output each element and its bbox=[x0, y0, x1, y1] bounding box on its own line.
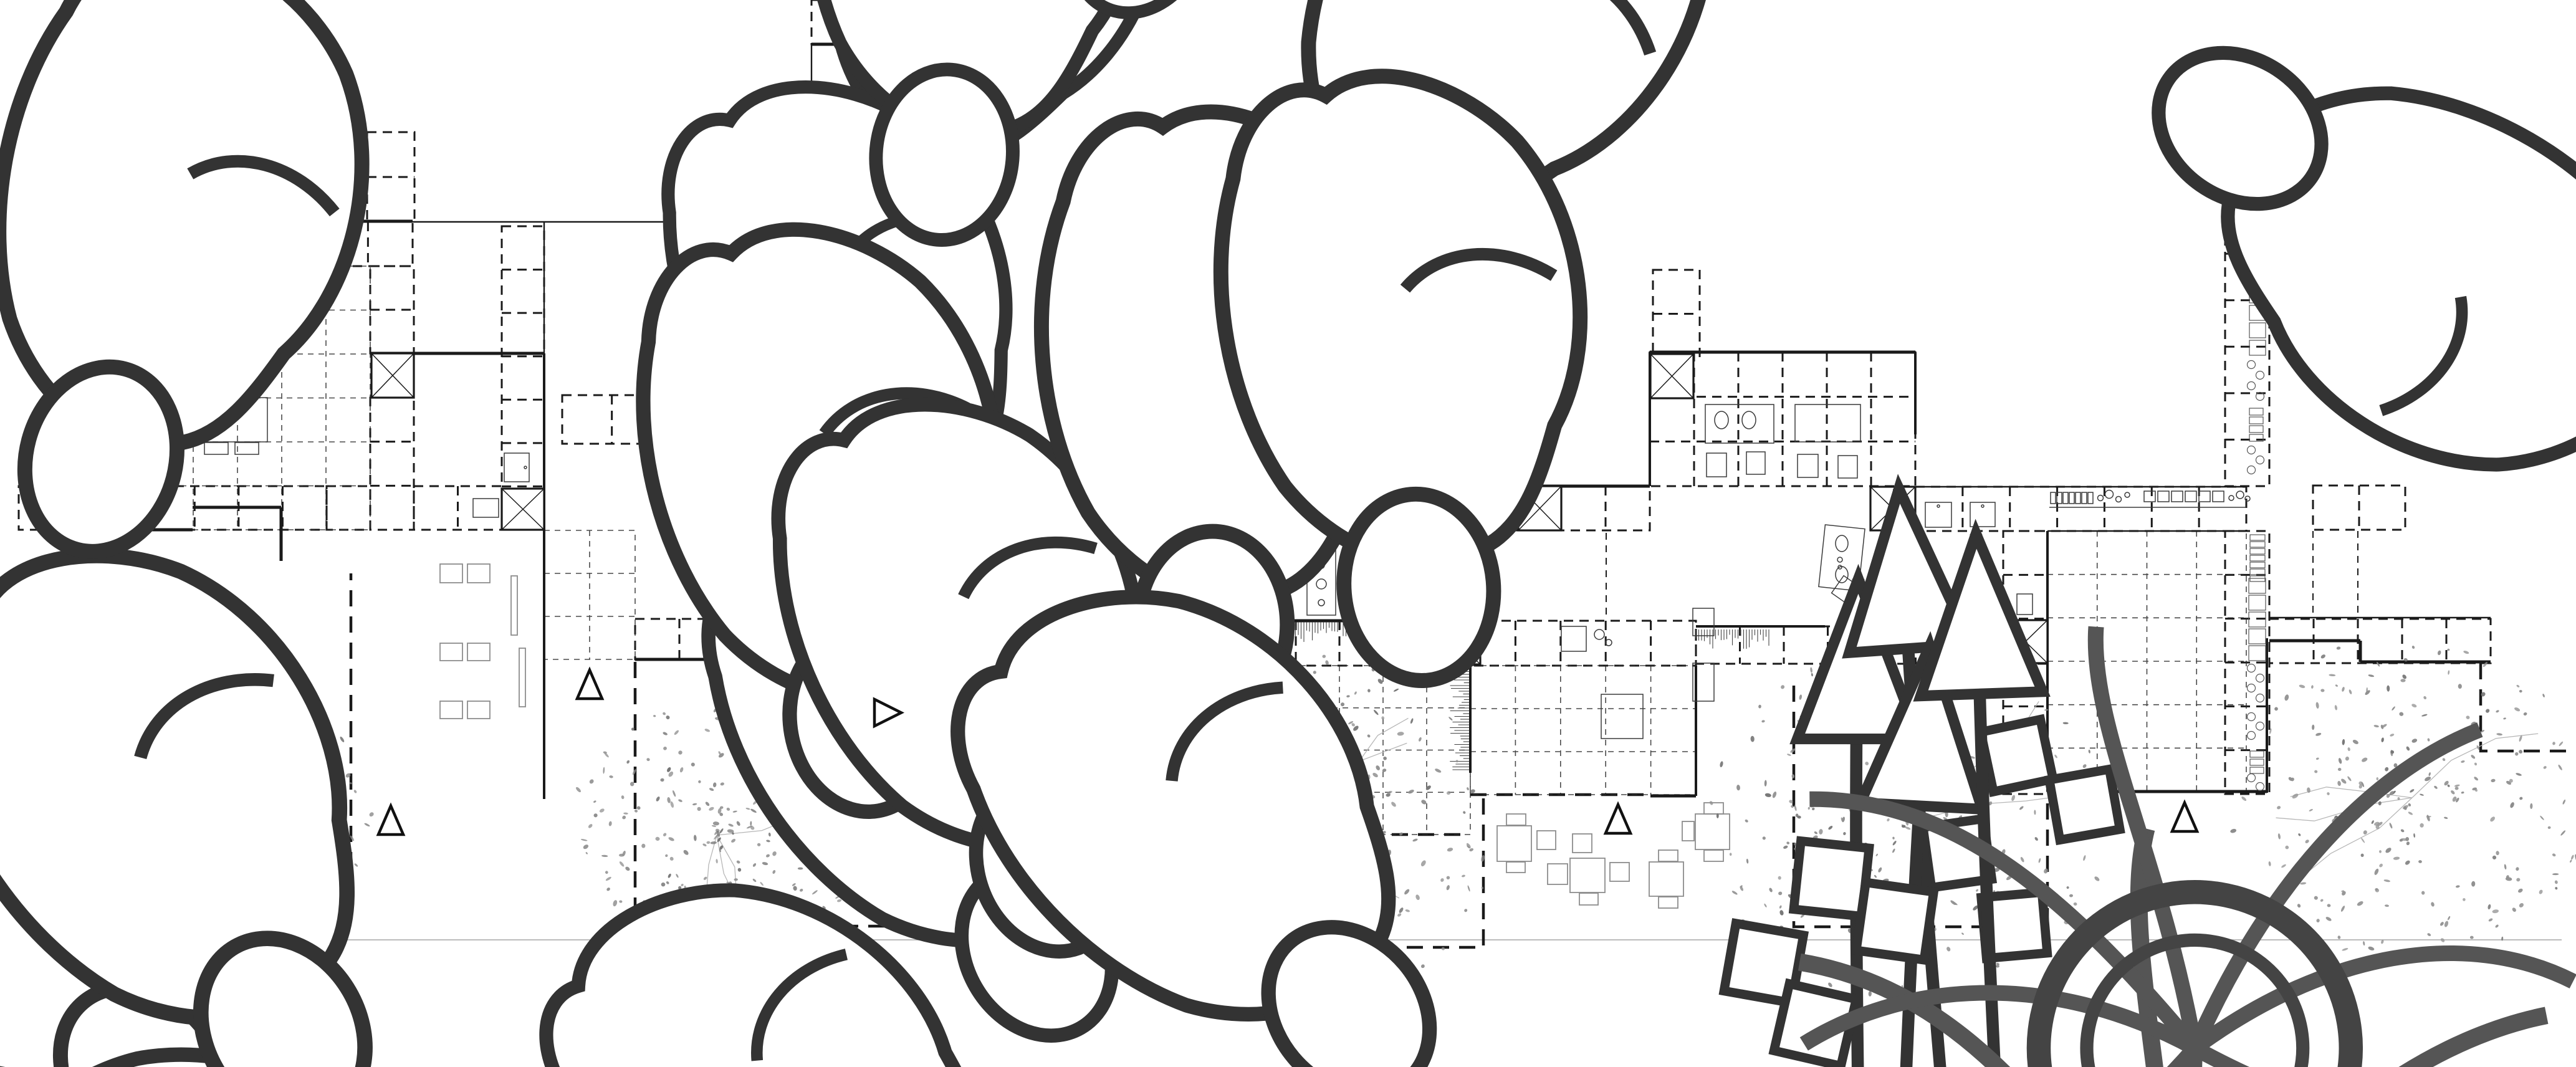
floor-plan-svg bbox=[0, 0, 2576, 1067]
people bbox=[0, 0, 2576, 1067]
architectural-site-plan bbox=[0, 0, 2576, 1067]
plan-layers bbox=[0, 0, 2576, 1067]
